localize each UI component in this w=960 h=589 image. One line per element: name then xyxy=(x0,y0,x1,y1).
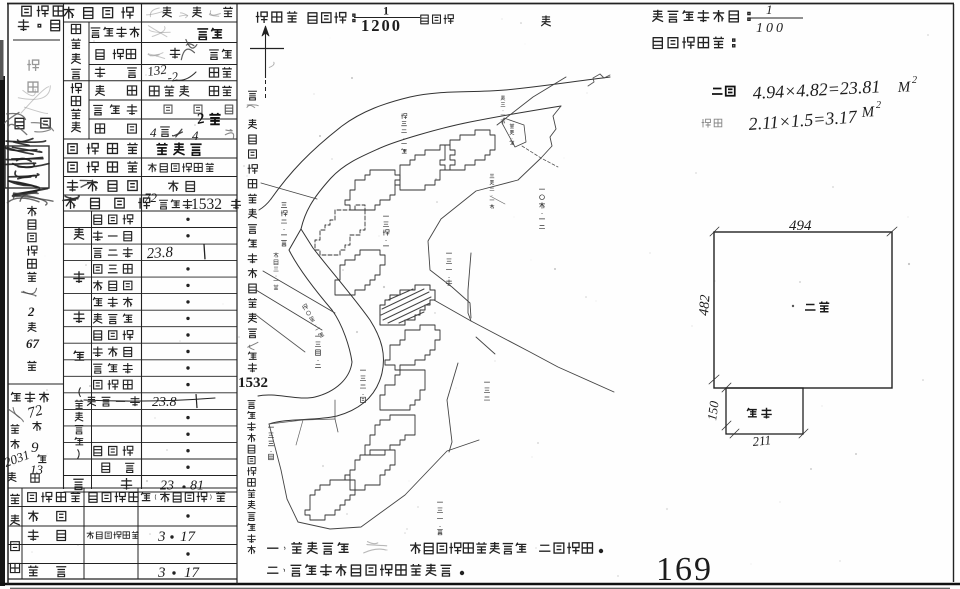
svg-text:482: 482 xyxy=(697,294,713,316)
svg-text:67: 67 xyxy=(26,336,40,351)
svg-text:3: 3 xyxy=(157,565,166,581)
svg-text:23.8: 23.8 xyxy=(146,244,174,262)
svg-text:4: 4 xyxy=(192,128,199,143)
svg-text:169: 169 xyxy=(656,551,713,588)
svg-text:494: 494 xyxy=(789,218,812,234)
svg-text:1532: 1532 xyxy=(238,375,268,391)
svg-text:1200: 1200 xyxy=(361,16,402,35)
svg-text:150: 150 xyxy=(704,400,722,422)
svg-text:100: 100 xyxy=(756,21,786,36)
svg-text:9: 9 xyxy=(31,440,39,456)
svg-text:211: 211 xyxy=(752,432,772,449)
svg-text:17: 17 xyxy=(184,565,201,581)
svg-text:23: 23 xyxy=(160,479,174,494)
svg-text:2: 2 xyxy=(876,100,881,111)
svg-text:13: 13 xyxy=(30,462,44,477)
svg-text:72: 72 xyxy=(144,190,158,205)
svg-text:132: 132 xyxy=(146,61,168,79)
svg-text:M: M xyxy=(896,79,912,96)
svg-text:3: 3 xyxy=(157,529,166,545)
svg-text:23.8: 23.8 xyxy=(152,395,177,410)
svg-text:2: 2 xyxy=(27,304,35,319)
svg-text:1: 1 xyxy=(766,2,773,17)
svg-text:17: 17 xyxy=(180,529,197,545)
svg-text:4: 4 xyxy=(150,125,157,140)
svg-text:2: 2 xyxy=(912,75,917,86)
svg-text:1532: 1532 xyxy=(191,196,222,213)
svg-text:81: 81 xyxy=(190,479,204,494)
